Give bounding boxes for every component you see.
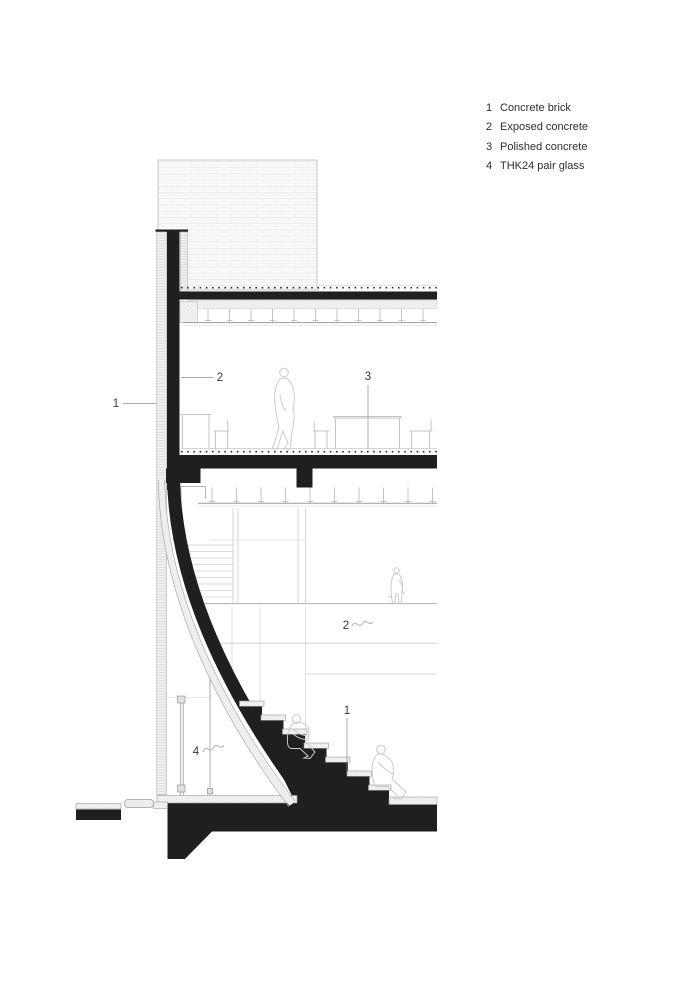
glass-shoe: [207, 789, 212, 794]
architectural-section-page: 1 2 3 2 1 4 1 Concrete brick 2 Exposed c…: [0, 0, 700, 990]
legend-item-polished-concrete: 3 Polished concrete: [486, 138, 588, 157]
downstand-beam: [297, 469, 313, 488]
callout-hall-concrete: 2: [343, 620, 349, 632]
floor2-ceiling-hangers: [209, 488, 436, 504]
threshold-paving: [154, 802, 168, 809]
exterior-ground-slab: [76, 810, 121, 821]
section-cut: [76, 230, 437, 860]
floor2-slab: [167, 455, 437, 469]
concrete-wall: [167, 231, 180, 490]
roof-ceiling-hangers: [205, 309, 426, 322]
table-right: [333, 417, 402, 449]
legend-num: 3: [486, 138, 500, 157]
legend-num: 2: [486, 118, 500, 137]
glass-bracket-bottom: [178, 785, 186, 792]
roof-slab: [167, 292, 437, 300]
human-figures: [272, 368, 404, 603]
legend-num: 1: [486, 99, 500, 118]
callout-pair-glass: 4: [193, 746, 200, 758]
pair-glass-lines: [181, 671, 210, 795]
ground-finish-right: [389, 797, 437, 805]
chair-3: [410, 420, 433, 449]
legend-label: Exposed concrete: [500, 118, 588, 137]
dotted-lines: [181, 288, 437, 452]
drainage-channel: [125, 800, 154, 808]
chair-2: [313, 422, 329, 449]
squiggle-pair-glass: [203, 745, 224, 752]
figure-standing: [388, 568, 404, 603]
background-linework: [158, 285, 437, 795]
callout-wall-concrete: 2: [217, 372, 223, 384]
callout-floor-polished: 3: [365, 371, 371, 383]
wall-inner-hatch: [180, 302, 198, 323]
legend-label: Polished concrete: [500, 138, 587, 157]
callout-stair-brick: 1: [344, 705, 350, 717]
legend-item-concrete-brick: 1 Concrete brick: [486, 99, 588, 118]
glass-bracket-top: [178, 696, 186, 703]
legend-item-pair-glass: 4 THK24 pair glass: [486, 157, 588, 176]
hall-wall-lines: [216, 643, 437, 674]
material-legend: 1 Concrete brick 2 Exposed concrete 3 Po…: [486, 99, 588, 176]
legend-label: THK24 pair glass: [500, 157, 584, 176]
table-left: [181, 415, 212, 449]
callout-facade-brick: 1: [113, 398, 119, 410]
ground-floor-finish: [157, 796, 297, 804]
exterior-paving: [76, 804, 121, 810]
section-drawing: 1 2 3 2 1 4: [0, 0, 700, 990]
window-head: [181, 487, 206, 500]
legend-num: 4: [486, 157, 500, 176]
foundation: [168, 802, 438, 859]
legend-label: Concrete brick: [500, 99, 571, 118]
figure-walking: [272, 368, 294, 449]
roof-buildup-hatch: [188, 300, 437, 309]
chair-1: [214, 421, 230, 449]
level3-mullions: [233, 508, 306, 603]
inner-brick-strip: [180, 232, 187, 292]
squiggle-hall-concrete: [352, 621, 373, 626]
legend-item-exposed-concrete: 2 Exposed concrete: [486, 118, 588, 137]
furniture: [181, 415, 433, 449]
